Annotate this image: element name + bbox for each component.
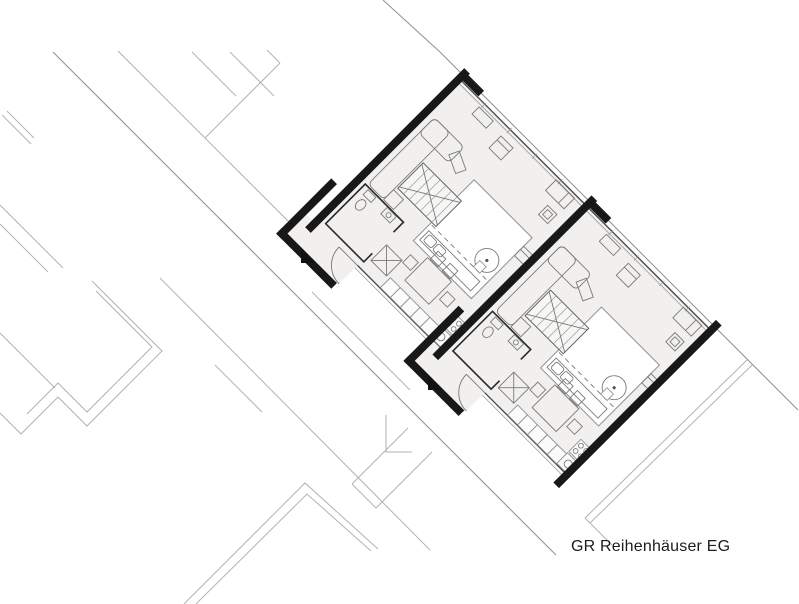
floor-plan-drawing (0, 0, 799, 604)
row-house-block (276, 57, 721, 502)
plan-caption: GR Reihenhäuser EG (571, 538, 730, 556)
floor-plan-page: GR Reihenhäuser EG (0, 0, 799, 604)
